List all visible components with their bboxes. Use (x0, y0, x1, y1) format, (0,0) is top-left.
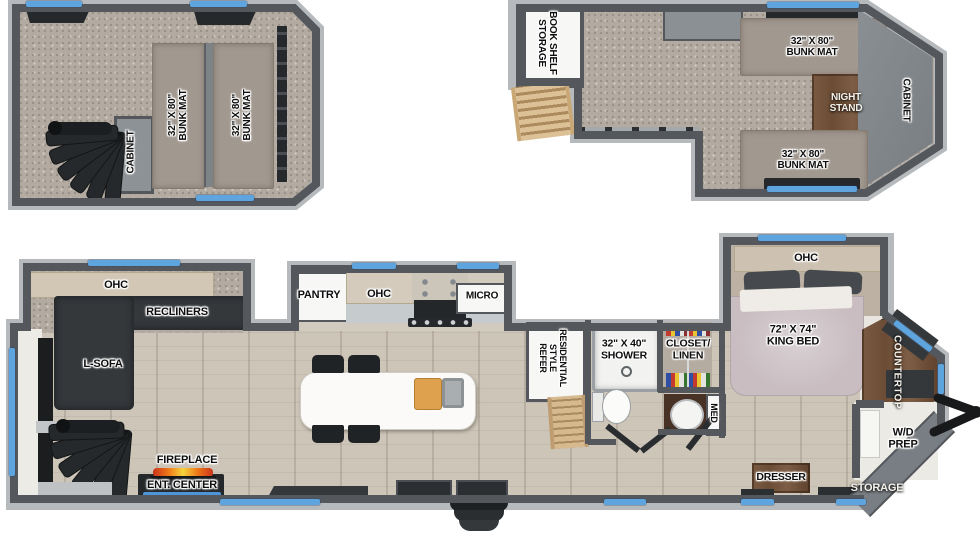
window-icon (741, 499, 774, 505)
label-book-shelf-storage: BOOK SHELF STORAGE (536, 11, 558, 75)
window-icon (767, 186, 857, 192)
loft-right-ladder-icon (511, 81, 575, 142)
label-bunk-mat: 32" X 80" BUNK MAT (167, 90, 189, 141)
bedroom-mat-icon (741, 489, 774, 498)
entry-mat-icon (396, 480, 452, 498)
window-icon (767, 2, 859, 8)
loft-railing-icon (578, 127, 700, 136)
loft-left-shelf2-icon (194, 11, 256, 25)
label-ohc-living: OHC (104, 279, 128, 291)
floorplan-canvas: CABINET 32" X 80" BUNK MAT 32" X 80" BUN… (0, 0, 980, 535)
loft-left-shelf-icon (26, 9, 90, 23)
step-icon (459, 520, 499, 531)
label-fireplace: FIREPLACE (157, 454, 218, 466)
label-ohc-kitchen: OHC (367, 288, 391, 300)
label-countertop: COUNTERTOP (891, 335, 902, 409)
loft-left-ladder-icon (277, 26, 287, 182)
chair-icon (312, 355, 344, 373)
window-icon (26, 1, 82, 7)
floor-bench-icon (268, 486, 368, 497)
window-icon (457, 263, 499, 269)
label-med: MED (709, 403, 719, 422)
label-storage: STORAGE (851, 482, 904, 494)
chair-icon (348, 355, 380, 373)
vanity-sink-icon (670, 399, 704, 431)
cutting-board-icon (414, 378, 442, 410)
label-recliners: RECLINERS (146, 306, 208, 318)
label-pantry: PANTRY (298, 289, 341, 301)
label-micro: MICRO (466, 290, 498, 301)
label-l-sofa: L-SOFA (83, 358, 122, 370)
label-closet-linen: CLOSET/ LINEN (666, 338, 710, 362)
label-dresser: DRESSER (756, 472, 805, 484)
window-icon (938, 364, 944, 394)
entry-steps-icon (450, 498, 508, 532)
label-ohc-bedroom: OHC (794, 252, 818, 264)
stove-knobs-icon (408, 318, 472, 327)
island-sink-icon (442, 378, 464, 408)
chair-icon (348, 425, 380, 443)
label-shower: 32" X 40" SHOWER (601, 338, 647, 362)
loft-right-cabinet-box-icon (663, 7, 743, 41)
label-night-stand: NIGHT STAND (830, 92, 863, 114)
label-bunk-mat: 32" X 80" BUNK MAT (778, 149, 829, 171)
loft-stairs-icon (547, 395, 589, 450)
bed-sheet-icon (740, 286, 853, 312)
label-bunk-mat: 32" X 80" BUNK MAT (787, 36, 838, 58)
window-icon (758, 235, 846, 241)
toilet-bowl-icon (602, 389, 631, 424)
label-wd-prep: W/D PREP (888, 427, 917, 452)
window-icon (9, 348, 15, 476)
l-sofa-icon (54, 296, 134, 410)
window-icon (836, 499, 866, 505)
label-bunk-mat: 32" X 80" BUNK MAT (231, 90, 253, 141)
label-refer: RESIDENTIAL STYLE REFER (538, 329, 568, 387)
wd-appliance-icon (860, 410, 880, 458)
window-icon (220, 499, 320, 505)
bottom-shelf-icon (38, 482, 112, 496)
shower-drain-icon (621, 366, 632, 377)
label-ent-center: ENT. CENTER (147, 479, 217, 491)
window-icon (604, 499, 646, 505)
label-loft-left-cabinet: CABINET (125, 130, 136, 173)
entry-mat-icon (456, 480, 508, 498)
soundbar-icon (143, 492, 221, 497)
window-icon (352, 263, 396, 269)
label-king-bed: 72" X 74" KING BED (767, 324, 819, 349)
label-loft-right-cabinet: CABINET (900, 78, 911, 121)
loft-left-spiral-stairs-icon (22, 108, 134, 200)
window-icon (88, 260, 180, 266)
window-icon (190, 1, 247, 7)
chair-icon (312, 425, 344, 443)
window-icon (196, 195, 254, 201)
